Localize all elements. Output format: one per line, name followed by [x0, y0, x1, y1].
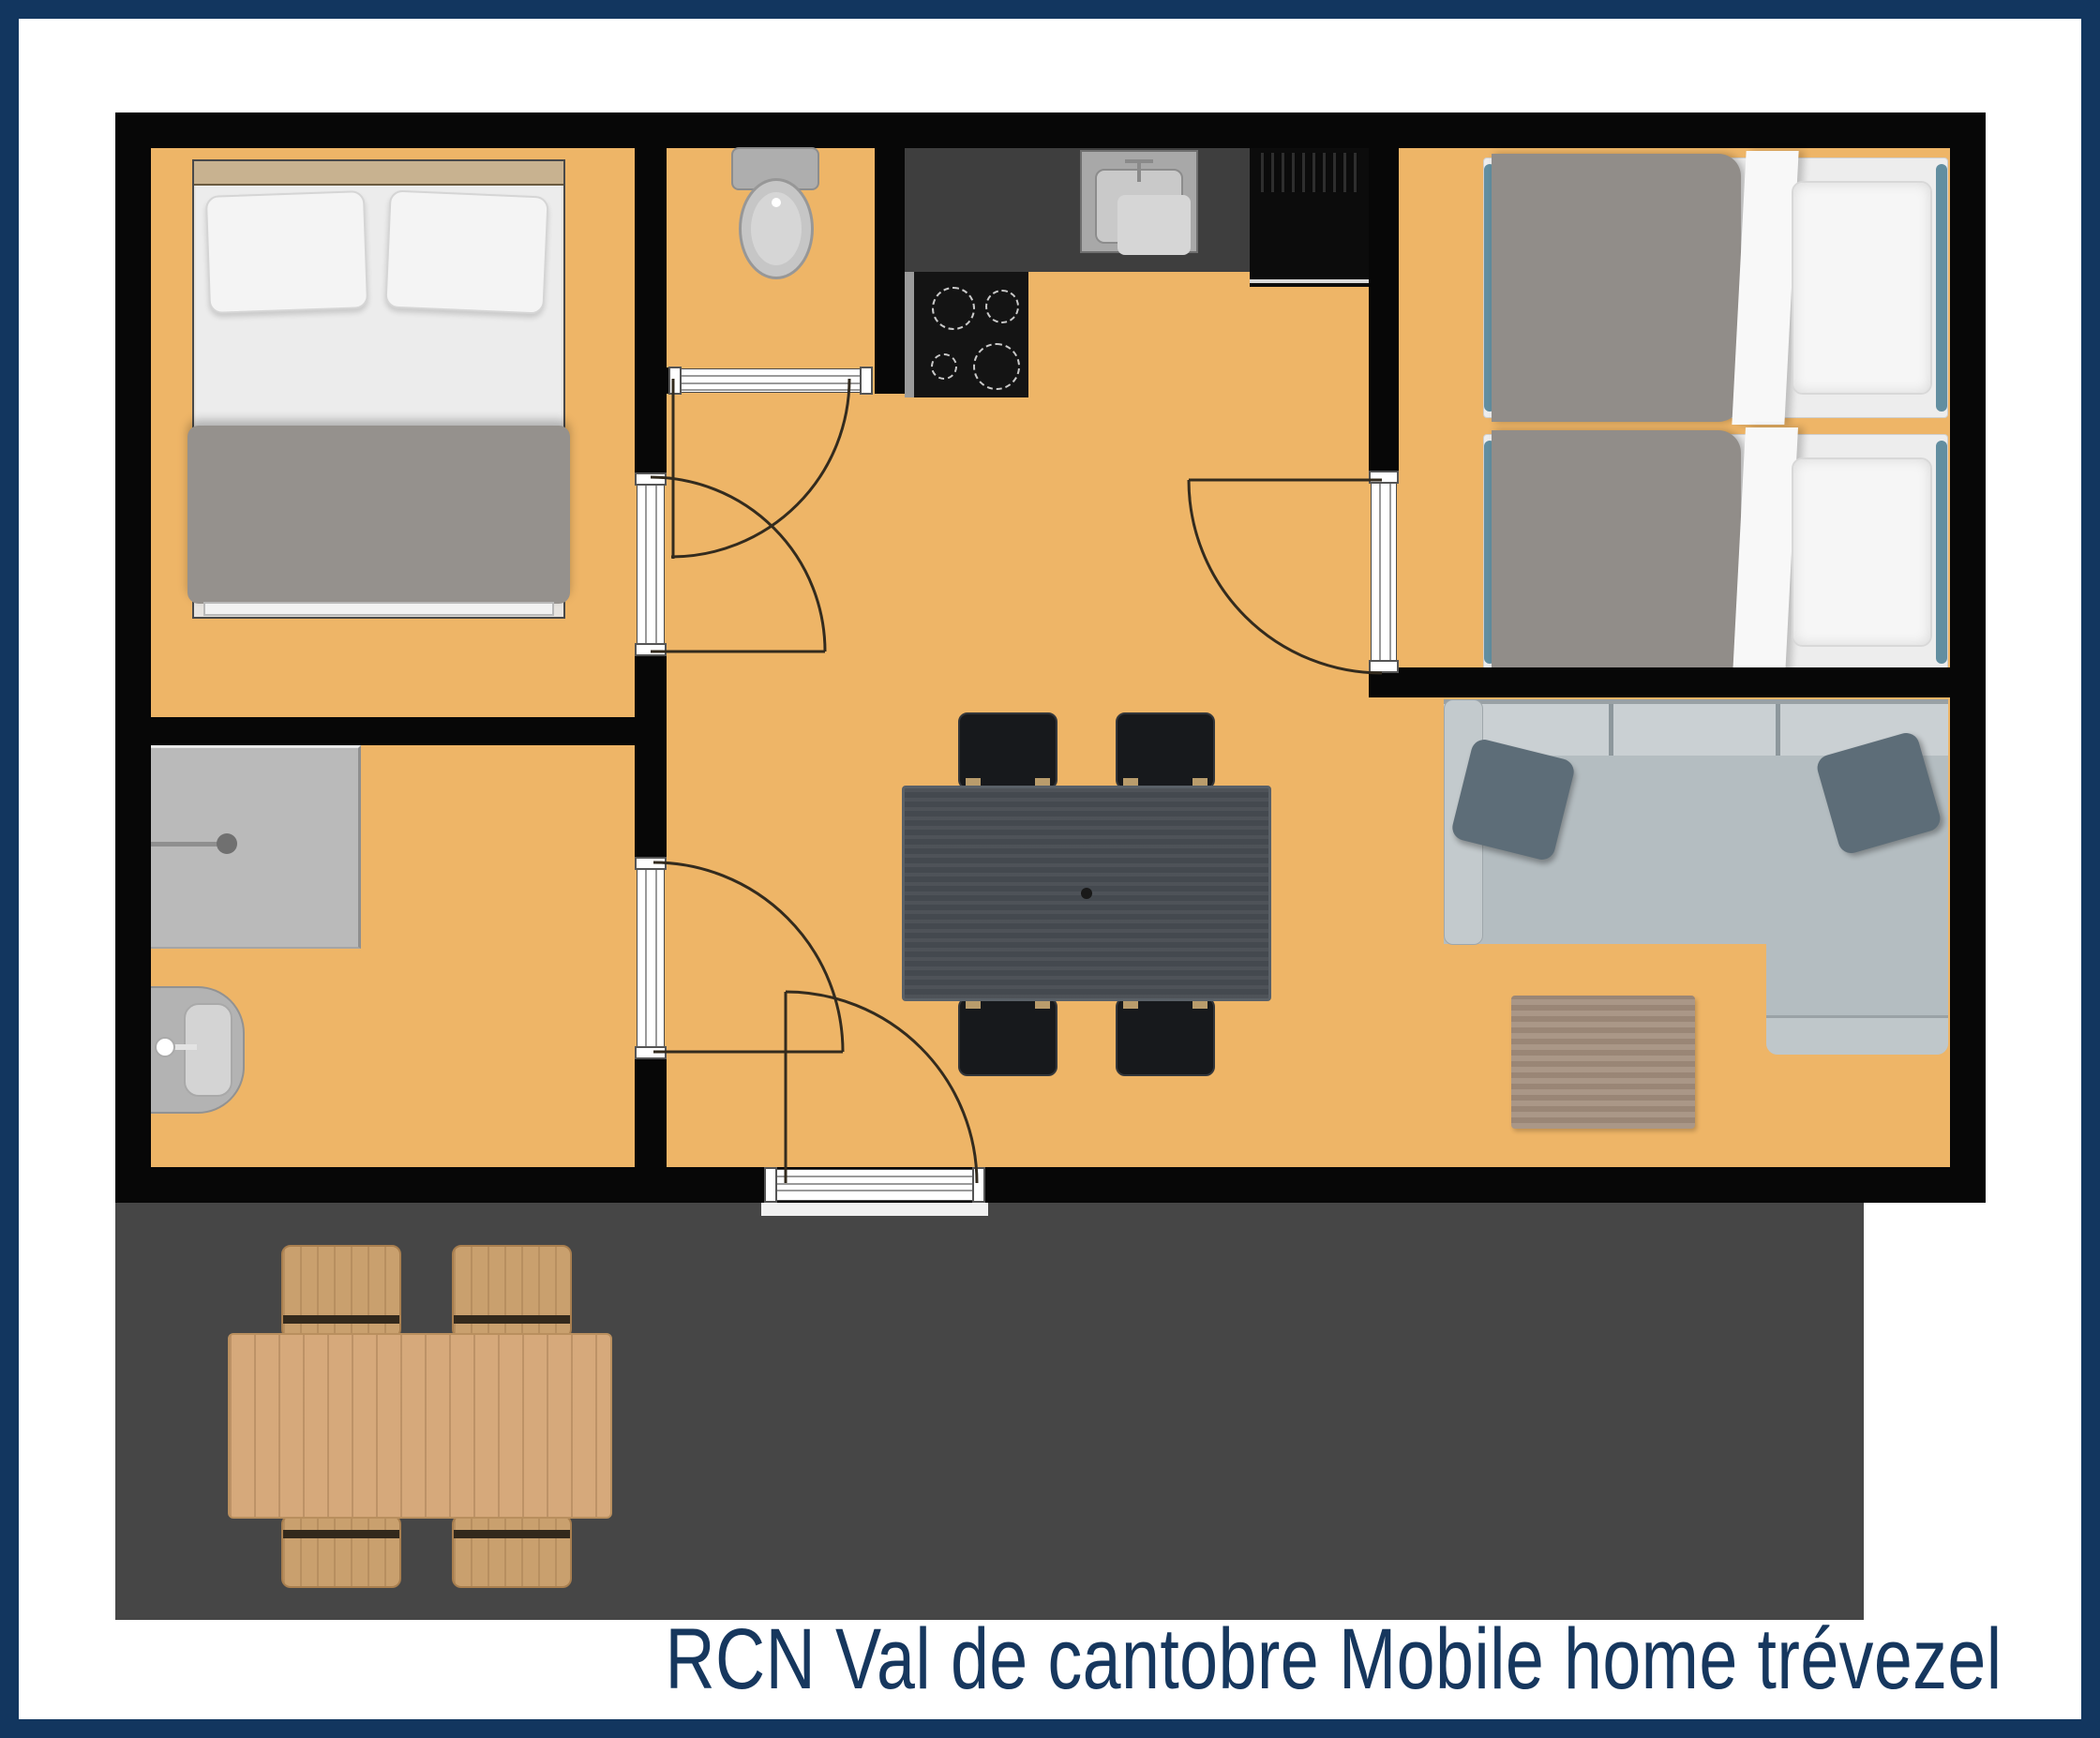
- image-border: [0, 0, 2100, 1738]
- floorplan-image: RCN Val de cantobre Mobile home trévezel: [0, 0, 2100, 1738]
